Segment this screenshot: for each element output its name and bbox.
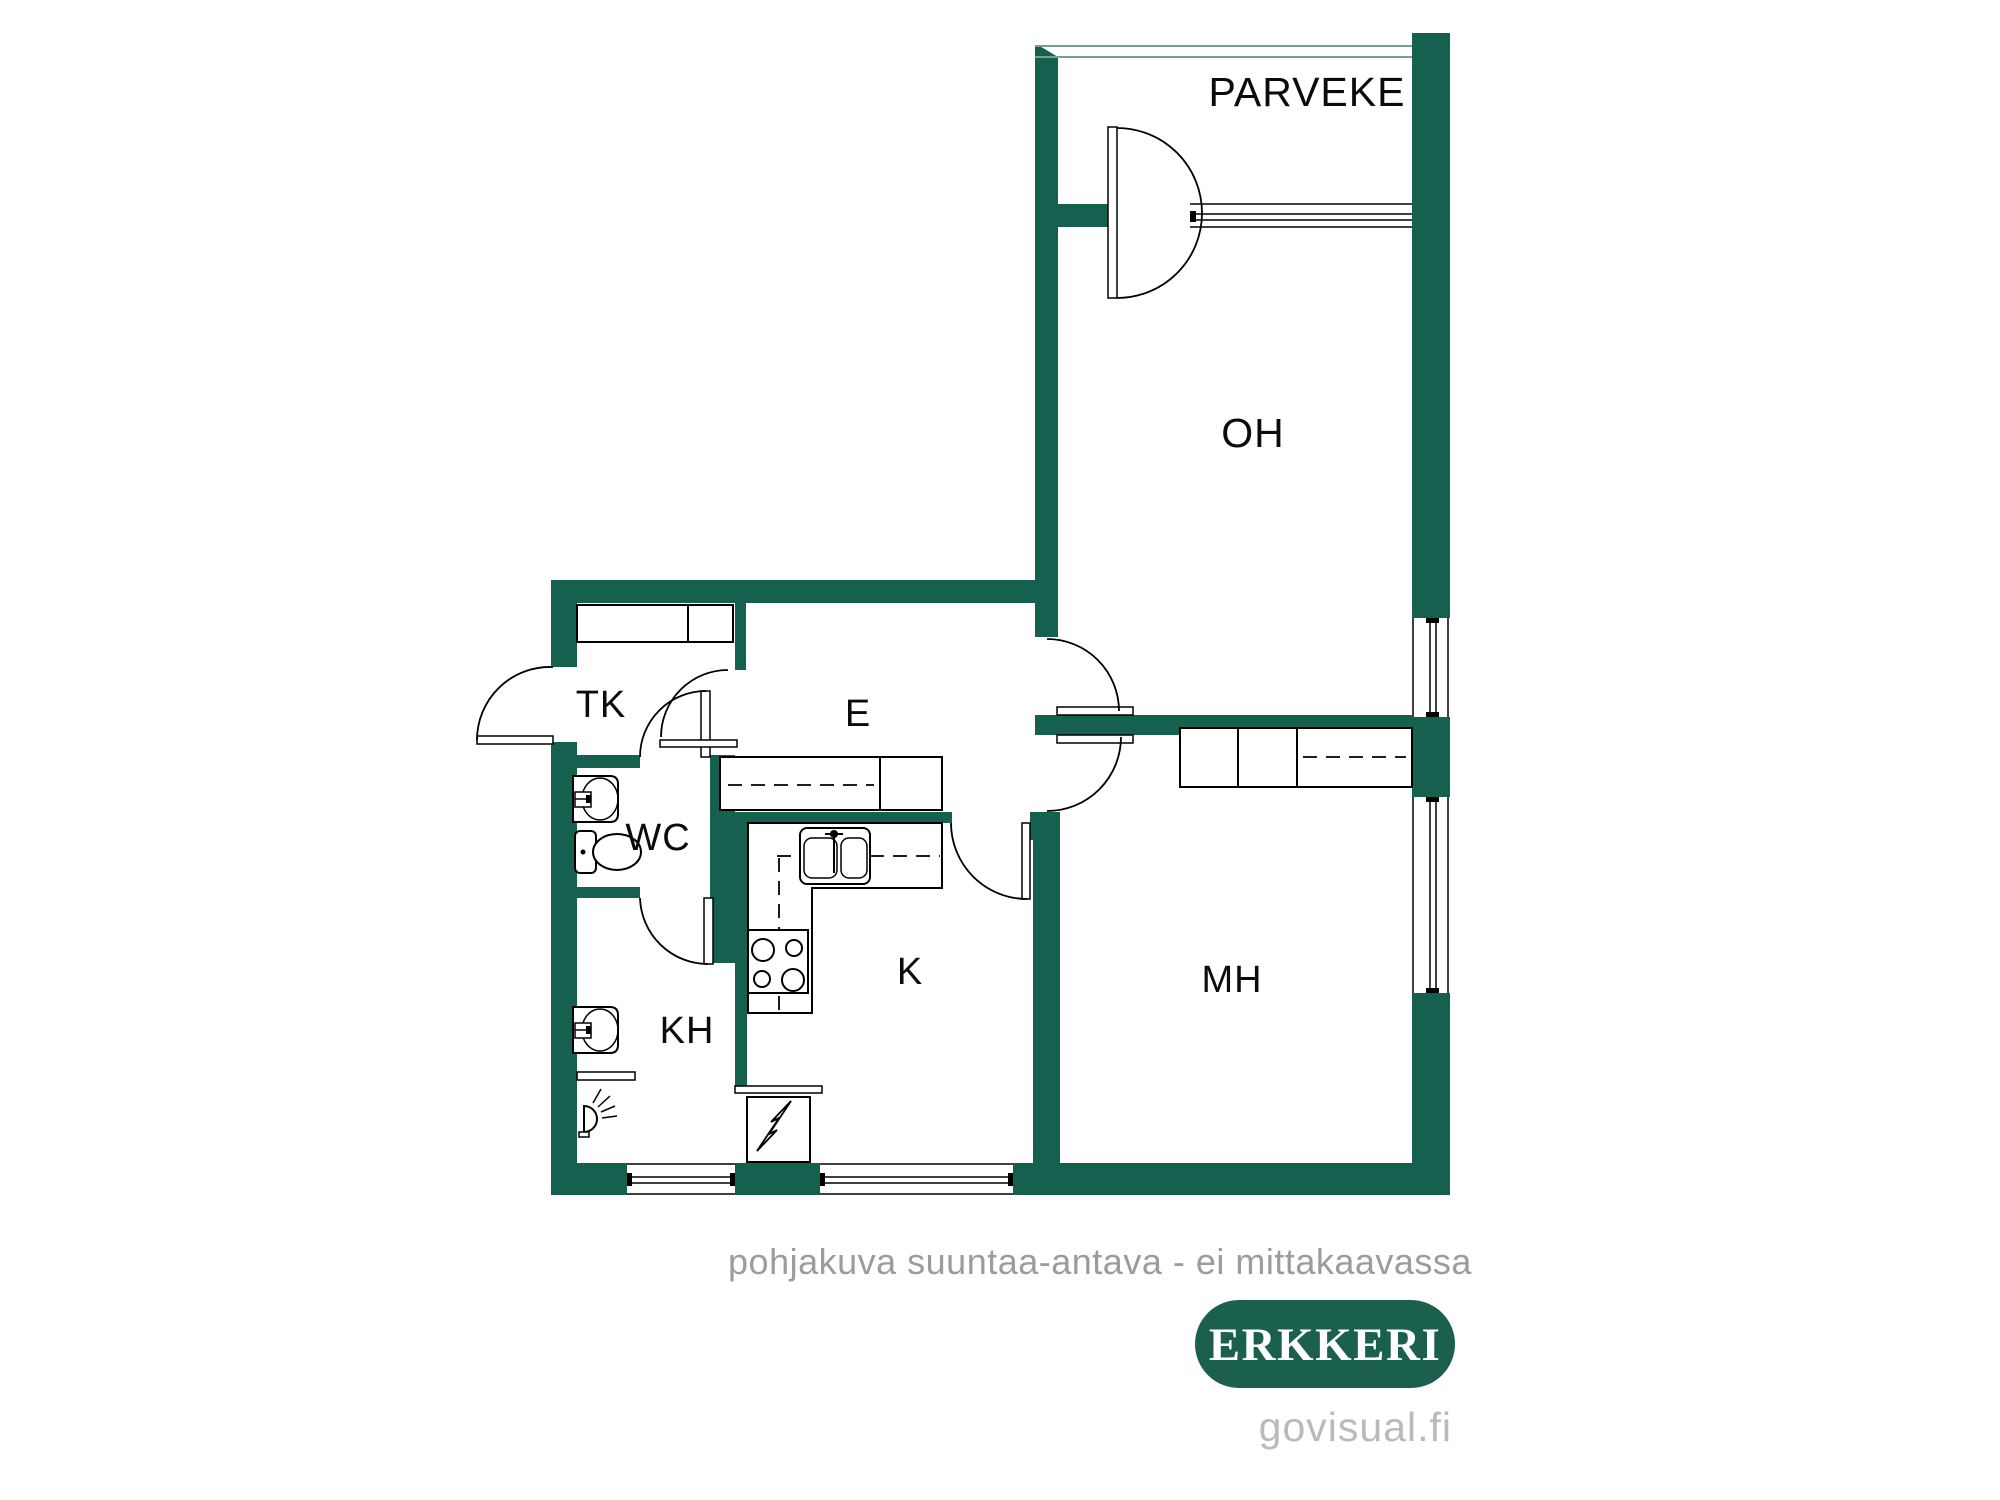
door-threshold xyxy=(660,740,737,747)
window-end-cap xyxy=(1008,1173,1013,1186)
balcony-window xyxy=(1190,204,1412,227)
wall-bedroom-west xyxy=(1033,812,1060,1163)
stove-icon xyxy=(748,930,808,993)
wall-right-top xyxy=(1412,33,1450,618)
wall-balcony-divider-stub xyxy=(1058,204,1108,227)
bathroom-sink-icon xyxy=(573,1007,618,1053)
bedroom-window xyxy=(1412,797,1450,993)
wardrobe xyxy=(720,757,942,810)
door-swing-arc xyxy=(477,667,553,740)
lamp-ray xyxy=(593,1089,601,1103)
bathroom-door xyxy=(640,898,713,964)
wall-kitchen-bathroom xyxy=(735,812,747,1088)
bedroom-door xyxy=(1047,735,1133,811)
label-living-room: OH xyxy=(1221,410,1285,456)
faucet-spout xyxy=(586,795,591,803)
window-opening xyxy=(1412,797,1450,993)
brand-badge: ERKKERI xyxy=(1195,1300,1455,1388)
window-end-cap xyxy=(1426,618,1439,623)
furniture xyxy=(577,605,1412,1018)
wall-top-entry xyxy=(553,580,1035,603)
entry-door xyxy=(477,667,553,744)
door-swing-arc xyxy=(1047,737,1121,811)
entry-closet-wardrobe xyxy=(577,605,733,642)
window-opening xyxy=(627,1163,735,1195)
door-swing-arc xyxy=(951,823,1027,899)
window-end-cap xyxy=(730,1173,735,1186)
door-swing-arc xyxy=(640,898,708,964)
wall-bottom-right xyxy=(1013,1163,1450,1195)
living-room-window xyxy=(1412,618,1450,717)
living-room-door xyxy=(1047,639,1133,715)
label-wc: WC xyxy=(625,817,690,859)
window-opening xyxy=(1412,618,1450,717)
window-end-cap xyxy=(627,1173,632,1186)
wall-entry-hall-stub xyxy=(735,603,746,670)
window-end-cap xyxy=(1426,712,1439,717)
door-leaf xyxy=(1022,823,1030,899)
window-end-cap xyxy=(820,1173,825,1186)
kitchen-window xyxy=(820,1163,1013,1195)
badge-label: ERKKERI xyxy=(1209,1319,1442,1371)
door-leaf xyxy=(477,736,553,744)
lamp-ray xyxy=(598,1096,610,1107)
wall-bottom-middle xyxy=(735,1163,820,1195)
wall-bottom-left xyxy=(551,1163,627,1195)
wall-right-middle xyxy=(1412,717,1450,797)
door-swing-arc xyxy=(1117,128,1202,298)
label-bathroom: KH xyxy=(660,1010,715,1052)
wc-sink-icon xyxy=(573,776,618,822)
wall-hall-kitchen xyxy=(720,812,952,823)
disclaimer-note: pohjakuva suuntaa-antava - ei mittakaava… xyxy=(728,1241,1472,1282)
wall-right-bottom xyxy=(1412,993,1450,1195)
website-watermark: govisual.fi xyxy=(1259,1404,1452,1450)
wall-west-balcony-living xyxy=(1035,45,1058,637)
room-labels: PARVEKE OH TK E WC K KH MH xyxy=(576,69,1406,1052)
electrical-panel-icon xyxy=(735,1086,822,1162)
window-end-cap xyxy=(1190,211,1196,222)
kitchen-door xyxy=(951,823,1030,899)
towel-rail-icon xyxy=(577,1072,635,1080)
door-swing-arc xyxy=(1047,639,1119,711)
bathroom-window xyxy=(627,1163,735,1195)
window-end-cap xyxy=(1426,797,1439,802)
window-end-cap xyxy=(1426,988,1439,993)
lamp-ray xyxy=(601,1106,615,1112)
faucet-spout xyxy=(586,1026,591,1034)
toilet-button xyxy=(581,850,586,855)
lamp-base xyxy=(579,1132,589,1137)
panel-box xyxy=(747,1097,810,1162)
wall-wc-south xyxy=(577,887,640,898)
label-hall: E xyxy=(845,693,871,735)
door-leaf xyxy=(1057,707,1133,715)
footer: pohjakuva suuntaa-antava - ei mittakaava… xyxy=(728,1241,1472,1450)
label-kitchen: K xyxy=(897,951,923,993)
label-balcony: PARVEKE xyxy=(1209,69,1406,115)
label-entry-closet: TK xyxy=(576,684,627,726)
lamp-dome xyxy=(584,1106,597,1132)
door-leaf xyxy=(1108,127,1117,298)
bedroom-wardrobe xyxy=(1180,728,1412,787)
wall-wc-north xyxy=(577,755,640,768)
window-opening xyxy=(820,1163,1013,1195)
floorplan-drawing: PARVEKE OH TK E WC K KH MH pohjakuva suu… xyxy=(0,0,2000,1500)
kitchen-sink-icon xyxy=(800,828,870,884)
stove-body xyxy=(748,930,808,993)
panel-shelf xyxy=(735,1086,822,1093)
door-leaf xyxy=(704,898,713,964)
lamp-ray xyxy=(602,1116,617,1118)
wall-kitchen-door-stub xyxy=(1030,812,1060,840)
balcony-railing xyxy=(1035,46,1412,57)
wall-lamp-icon xyxy=(579,1089,617,1137)
wardrobe xyxy=(577,605,733,642)
floorplan-page: PARVEKE OH TK E WC K KH MH pohjakuva suu… xyxy=(0,0,2000,1500)
door-swing-arc xyxy=(661,670,728,737)
hall-wardrobe xyxy=(720,757,942,810)
entry-closet-passage xyxy=(660,670,737,747)
balcony-door xyxy=(1108,127,1202,298)
label-bedroom: MH xyxy=(1201,959,1262,1001)
